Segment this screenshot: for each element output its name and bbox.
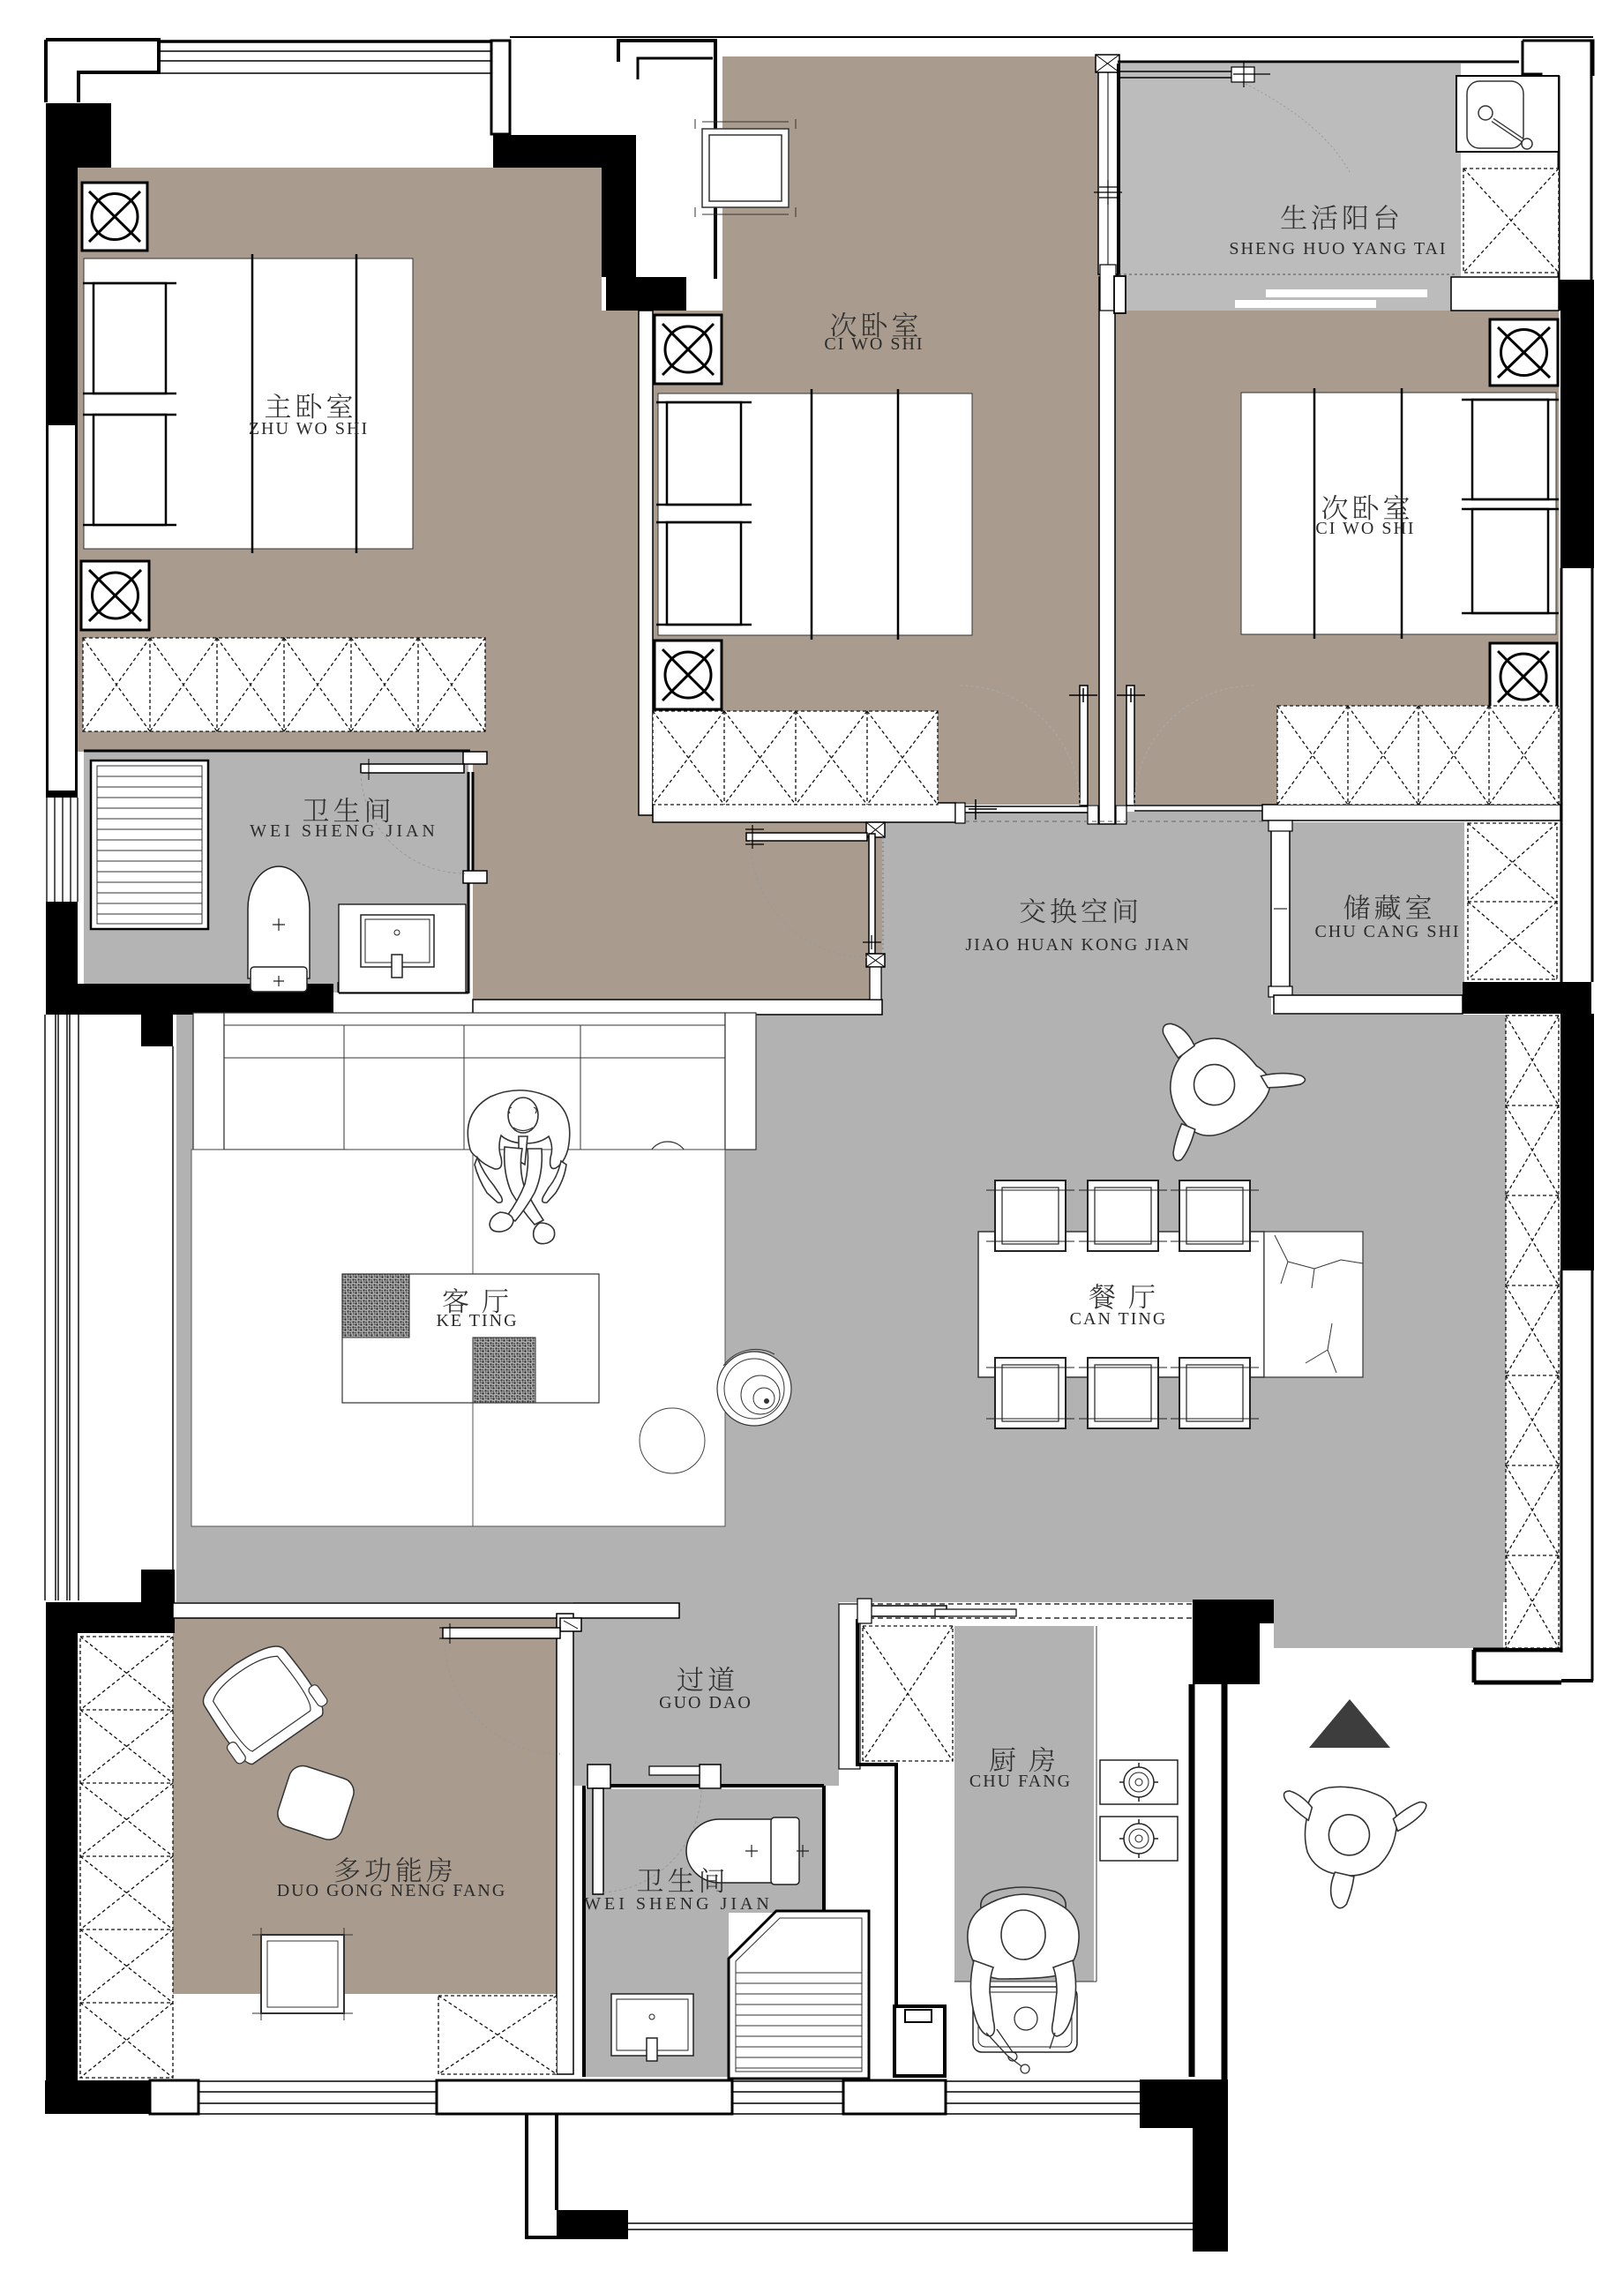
svg-text:JIAO HUAN KONG JIAN: JIAO HUAN KONG JIAN [965,935,1190,955]
svg-text:CHU CANG SHI: CHU CANG SHI [1314,922,1460,941]
svg-text:SHENG HUO YANG TAI: SHENG HUO YANG TAI [1229,239,1447,259]
svg-text:GUO DAO: GUO DAO [659,1693,752,1712]
svg-text:KE TING: KE TING [436,1311,518,1330]
svg-text:CI WO SHI: CI WO SHI [1315,519,1415,538]
svg-text:ZHU WO SHI: ZHU WO SHI [249,419,369,438]
svg-text:WEI SHENG JIAN: WEI SHENG JIAN [584,1894,773,1914]
svg-text:CHU FANG: CHU FANG [969,1772,1072,1791]
svg-text:CI WO SHI: CI WO SHI [824,334,924,354]
svg-text:WEI SHENG JIAN: WEI SHENG JIAN [250,821,438,841]
svg-text:CAN TING: CAN TING [1070,1309,1168,1329]
svg-text:DUO GONG NENG FANG: DUO GONG NENG FANG [277,1881,507,1900]
